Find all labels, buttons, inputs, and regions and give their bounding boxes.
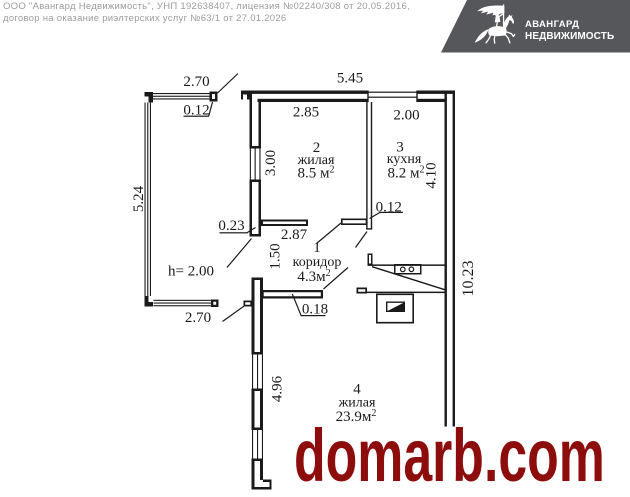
- svg-text:10.23: 10.23: [460, 261, 477, 297]
- svg-text:2.85: 2.85: [293, 105, 319, 121]
- svg-text:5.45: 5.45: [337, 71, 363, 87]
- svg-text:0.23: 0.23: [218, 218, 244, 234]
- svg-text:5.24: 5.24: [131, 185, 147, 212]
- svg-text:h= 2.00: h= 2.00: [168, 264, 214, 280]
- svg-text:3.00: 3.00: [263, 150, 279, 176]
- svg-text:4.96: 4.96: [270, 375, 286, 402]
- svg-text:2.87: 2.87: [281, 227, 308, 243]
- svg-text:0.12: 0.12: [183, 103, 209, 119]
- svg-text:коридор: коридор: [293, 255, 342, 270]
- svg-text:1: 1: [313, 240, 321, 256]
- svg-text:0.18: 0.18: [302, 302, 328, 318]
- svg-text:2.00: 2.00: [393, 108, 419, 124]
- svg-text:4.3м2: 4.3м2: [297, 268, 330, 285]
- svg-text:НЕДВИЖИМОСТЬ: НЕДВИЖИМОСТЬ: [525, 31, 614, 42]
- svg-text:8.5 м2: 8.5 м2: [298, 165, 335, 182]
- svg-text:2.70: 2.70: [183, 74, 209, 90]
- svg-text:8.2 м2: 8.2 м2: [388, 165, 425, 182]
- svg-text:1.50: 1.50: [268, 243, 284, 269]
- svg-text:АВАНГАРД: АВАНГАРД: [525, 19, 579, 30]
- svg-text:4.10: 4.10: [424, 162, 440, 188]
- svg-text:0.12: 0.12: [376, 200, 402, 216]
- svg-text:2.70: 2.70: [185, 310, 211, 326]
